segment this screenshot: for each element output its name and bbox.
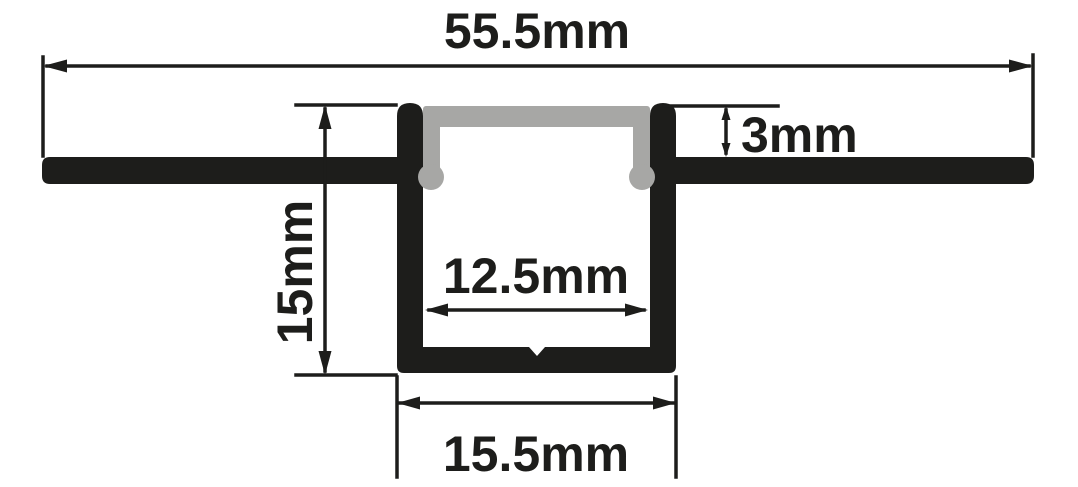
recess-depth-label: 3mm [741,107,858,163]
profile-cross-section-diagram: 55.5mm 3mm 15mm 12.5mm 15.5mm [0,0,1078,487]
diffuser-right-clip-foot [629,164,655,190]
drawing-background [0,0,1078,487]
inner-width-label: 12.5mm [443,248,629,304]
overall-width-label: 55.5mm [444,3,630,59]
diffuser-top-plate [423,106,650,127]
technical-drawing-canvas: 55.5mm 3mm 15mm 12.5mm 15.5mm [0,0,1078,487]
right-channel-wall [650,103,676,355]
diffuser-left-clip-foot [418,164,444,190]
left-channel-wall [397,103,423,355]
profile-height-label: 15mm [267,200,323,345]
left-mounting-flange [42,157,423,184]
outer-width-label: 15.5mm [443,426,629,482]
